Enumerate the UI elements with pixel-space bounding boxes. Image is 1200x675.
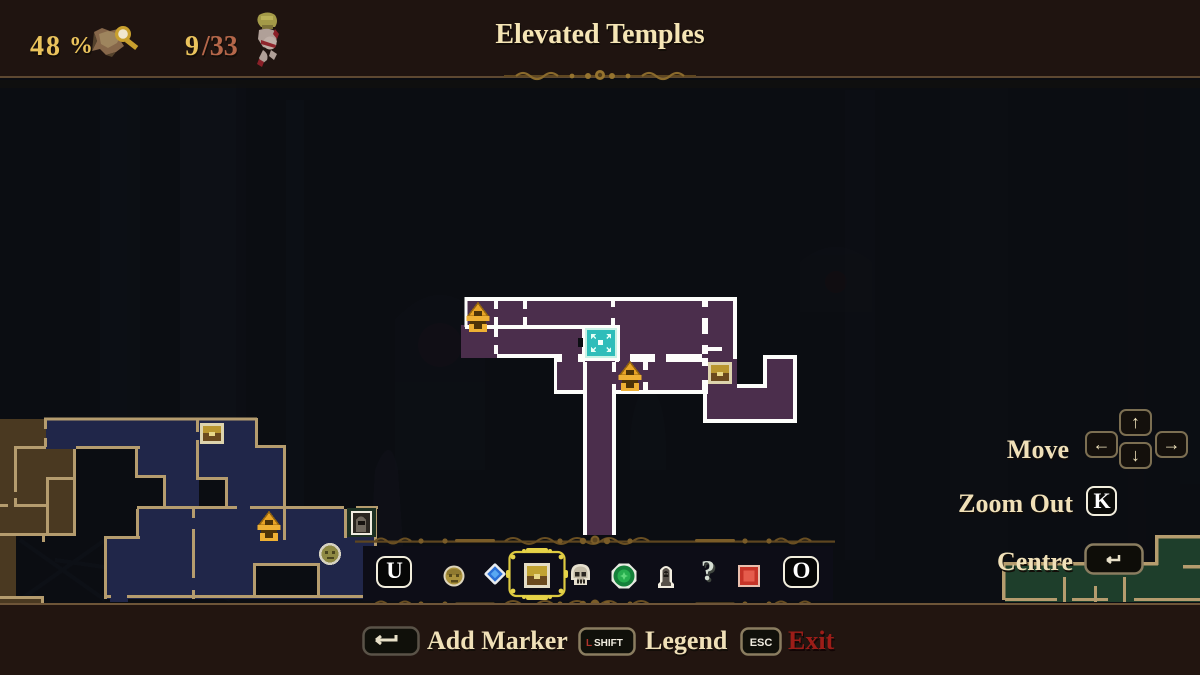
svg-text:L: L: [586, 638, 592, 649]
svg-text:SHIFT: SHIFT: [594, 638, 623, 649]
svg-text:ESC: ESC: [750, 637, 773, 649]
